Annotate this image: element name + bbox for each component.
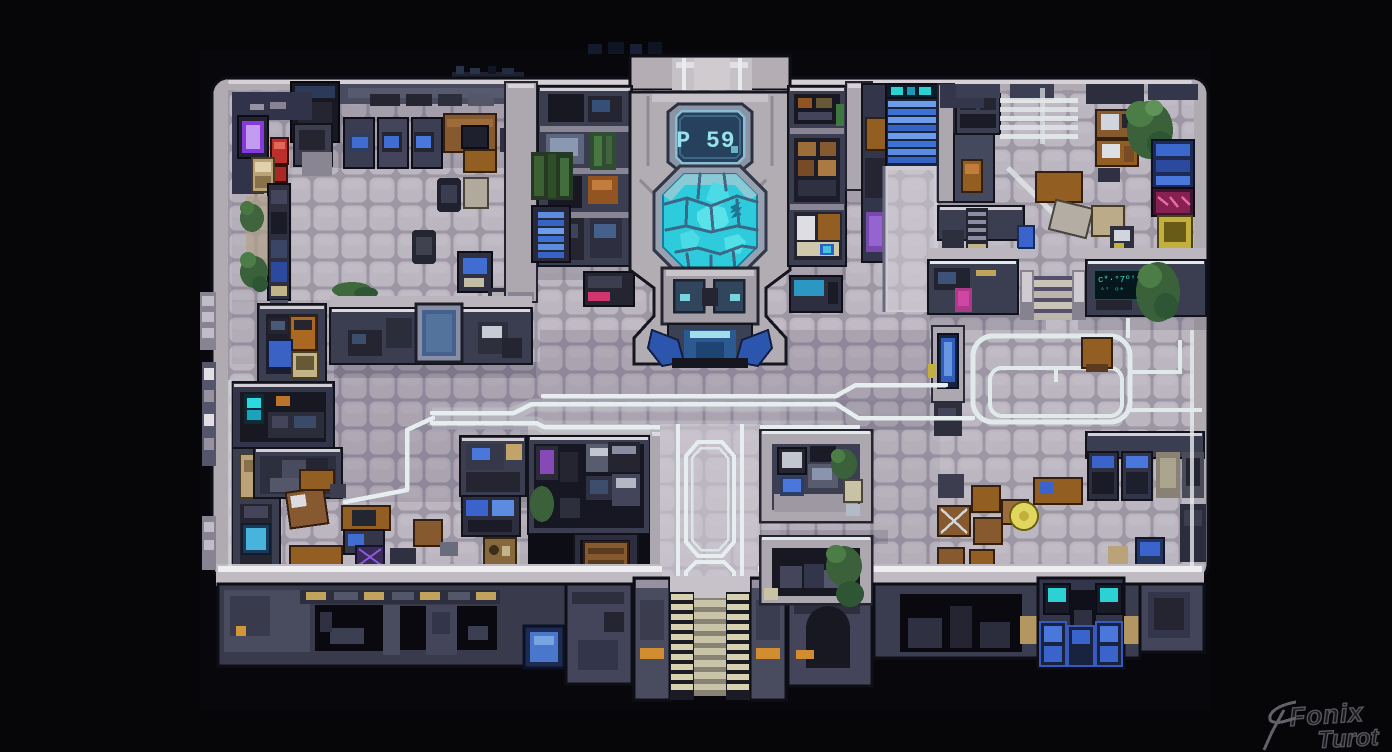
svg-text:Turot: Turot: [1317, 724, 1380, 752]
